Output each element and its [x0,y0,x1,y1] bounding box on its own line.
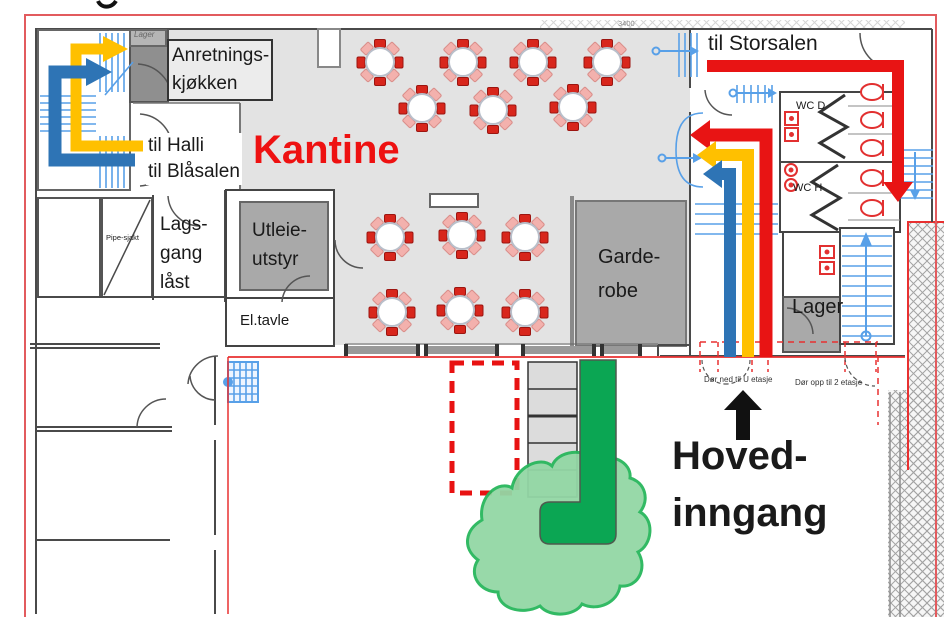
route-from-entrance-blue [703,160,730,357]
toilet-icon [861,140,883,156]
anretningskjokken-line2: kjøkken [172,70,268,98]
wc-d-label: WC D [796,101,825,112]
lager-right-label: Lager [792,297,843,317]
lager-small-label: Lager [134,31,154,39]
lagsgang-line2: gang [160,239,208,268]
utleie-line2: utstyr [252,245,307,274]
hovedinngang-line2: inngang [672,485,828,542]
cropped-title-fragment [98,1,116,7]
toilet-icon [861,112,883,128]
wc-h-label: WC H [793,183,822,194]
anretningskjokken-room-label: Anretnings- kjøkken [167,39,273,101]
pipesjakt-label: Pipe-sjakt [106,234,139,242]
garderobe-line1: Garde- [598,240,660,274]
til-halli-line: til Halli [148,133,240,159]
floorplan-canvas: Kantine Anretnings- kjøkken til Halli ti… [0,0,944,617]
til-storsalen-label: til Storsalen [708,33,818,54]
hovedinngang-line1: Hoved- [672,428,828,485]
door-down-label: Dør ned til U etasje [704,376,772,384]
toilet-icon [861,170,883,186]
lagsgang-line1: Lags- [160,210,208,239]
door-up-label: Dør opp til 2 etasje [795,379,862,387]
utleieutstyr-label: Utleie- utstyr [252,216,307,274]
til-blasalen-line: til Blåsalen [148,159,240,185]
anretningskjokken-line1: Anretnings- [172,42,268,70]
til-halli-blasalen-label: til Halli til Blåsalen [146,133,242,185]
utleie-line1: Utleie- [252,216,307,245]
lagsgang-label: Lags- gang låst [160,210,208,297]
toilet-icon [861,200,883,216]
dimension-label: 3400 [618,20,635,28]
hovedinngang-label: Hoved- inngang [672,428,828,542]
garderobe-label: Garde- robe [598,240,660,308]
garderobe-line2: robe [598,274,660,308]
lagsgang-line3: låst [160,268,208,297]
toilet-icon [861,84,883,100]
eltavle-label: El.tavle [240,313,289,328]
red-dashed-zone [452,363,517,493]
kantine-label: Kantine [253,130,400,170]
